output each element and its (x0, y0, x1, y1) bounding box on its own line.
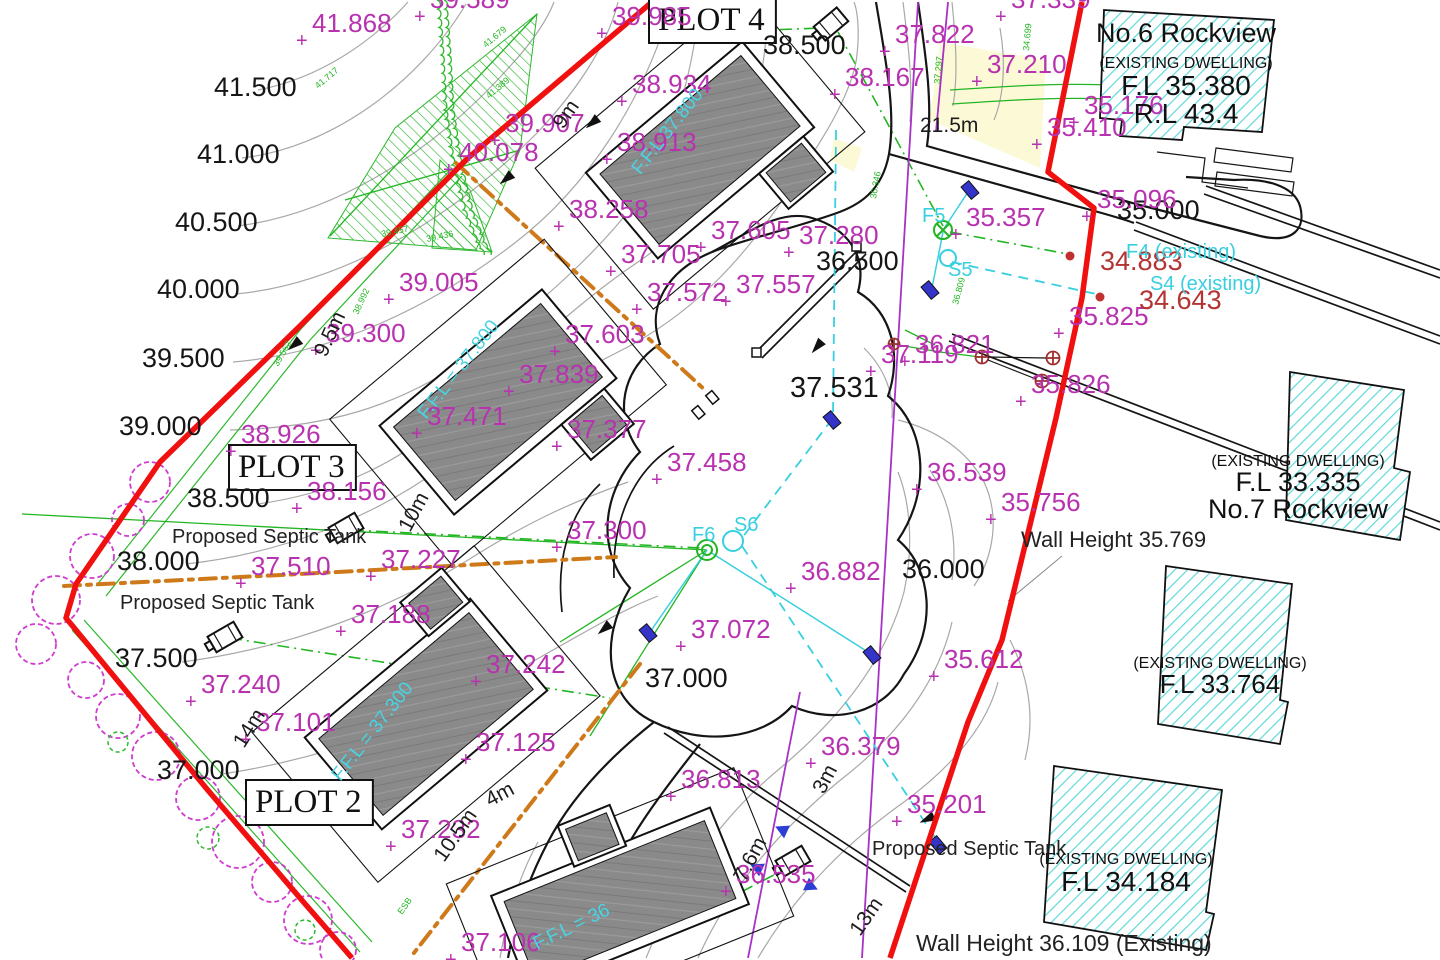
plus-mark: + (1015, 391, 1027, 413)
plus-mark: + (225, 441, 237, 463)
spot-level-label: 35.826 (1031, 369, 1111, 399)
spot-level-label: 37.188 (351, 599, 431, 629)
dimension-label: 4m (482, 777, 519, 811)
spot-level-label: 37.557 (736, 269, 816, 299)
spot-level-label: 36.813 (681, 764, 761, 794)
spot-level-label: 37.119 (881, 339, 959, 369)
contour-label: 41.500 (214, 72, 297, 102)
plus-mark: + (783, 242, 795, 264)
plus-mark: + (335, 621, 347, 643)
spot-level-label: 35.201 (907, 789, 987, 819)
plus-mark: + (891, 811, 903, 833)
spot-level-label: 36.379 (821, 731, 901, 761)
spot-level-label: 35.756 (1001, 487, 1081, 517)
survey-point-label: 38.992 (351, 287, 372, 316)
plus-mark: + (443, 159, 455, 181)
existing-dwelling-label: F.L 33.335 (1235, 467, 1360, 497)
dimension-label: 10m (394, 488, 433, 535)
plus-mark: + (1053, 323, 1065, 345)
plus-mark: + (411, 423, 423, 445)
existing-dwelling-label: F.L 34.184 (1061, 866, 1191, 897)
dimension-label: 21.5m (920, 114, 978, 137)
plus-mark: + (553, 216, 565, 238)
spot-level-label: 35.357 (966, 202, 1046, 232)
spot-level-label: 38.926 (241, 419, 321, 449)
annotation-label: Proposed Septic Tank (120, 592, 315, 614)
contour-label: 40.000 (157, 274, 240, 304)
tree-symbol (16, 624, 56, 664)
spot-level-label: 38.156 (307, 476, 387, 506)
plot-title: PLOT 2 (255, 784, 362, 820)
annotation-label: Proposed Septic Tank (872, 838, 1067, 860)
plus-mark: + (911, 479, 923, 501)
dimension-label: 13m (845, 893, 887, 940)
plus-mark: + (551, 436, 563, 458)
plus-mark: + (385, 836, 397, 858)
spot-level-label: 37.822 (895, 19, 975, 49)
plus-mark: + (383, 289, 395, 311)
survey-point-label: 41.717 (313, 65, 341, 90)
spot-level-label: 37.510 (251, 551, 331, 581)
survey-point-label: 36.346 (868, 170, 883, 199)
site-plan-drawing: PLOT 4PLOT 3PLOT 241.50041.00040.50040.0… (0, 0, 1440, 960)
spot-level-label: 37.603 (565, 319, 645, 349)
spot-level-label: 37.377 (567, 414, 647, 444)
existing-dwelling-label: F.L 33.764 (1160, 669, 1280, 699)
plus-mark: + (950, 224, 962, 246)
plus-mark: + (720, 881, 732, 903)
spot-level-label: 37.106 (461, 927, 541, 957)
plus-mark: + (445, 949, 457, 960)
plus-mark: + (296, 30, 308, 52)
existing-dwelling-label: F.L 35.380 (1121, 70, 1251, 101)
plus-mark: + (865, 361, 877, 383)
drainage-node-label: S4 (existing) (1150, 273, 1261, 295)
contour-label: 37.000 (645, 663, 728, 693)
spot-level-label: 35.410 (1047, 112, 1127, 142)
existing-dwelling-label: R.L 43.4 (1134, 98, 1239, 129)
contour-label: 41.000 (197, 139, 280, 169)
contour-label: 38.000 (117, 546, 200, 576)
plus-mark: + (675, 636, 687, 658)
plus-mark: + (665, 786, 677, 808)
plus-mark: + (1081, 206, 1093, 228)
plus-mark: + (605, 261, 617, 283)
spot-level-label: 37.240 (201, 669, 281, 699)
spot-level-label: 36.882 (801, 556, 881, 586)
contour-label: 36.500 (816, 246, 899, 276)
plus-mark: + (785, 578, 797, 600)
plus-mark: + (651, 469, 663, 491)
plus-mark: + (995, 6, 1007, 28)
plus-mark: + (1031, 134, 1043, 156)
spot-level-label: 41.868 (312, 8, 392, 38)
existing-node-F4-icon (1066, 252, 1075, 261)
spot-level-label: 37.227 (381, 544, 461, 574)
spot-level-label: 37.339 (1011, 0, 1091, 14)
drainage-node-label: F6 (692, 524, 715, 546)
shrub-symbol (108, 732, 128, 752)
spot-level-label: 38.258 (569, 194, 649, 224)
plus-mark: + (365, 566, 377, 588)
plus-mark: + (470, 671, 482, 693)
plus-mark: + (551, 537, 563, 559)
shrub-symbol (197, 827, 219, 849)
spot-level-label: 39.589 (430, 0, 510, 14)
existing-dwelling-label: No.6 Rockview (1096, 18, 1277, 48)
plus-mark: + (616, 91, 628, 113)
plus-mark: + (720, 291, 732, 313)
plus-mark: + (928, 666, 940, 688)
plus-mark: + (631, 299, 643, 321)
contour-label: 37.000 (157, 755, 240, 785)
spot-level-label: 37.101 (256, 707, 336, 737)
spot-level-label: 37.458 (667, 447, 747, 477)
existing-dwelling-label: No.7 Rockview (1208, 494, 1389, 524)
plus-mark: + (414, 6, 426, 28)
spot-level-label: 37.605 (711, 215, 791, 245)
spot-level-label: 37.300 (567, 515, 647, 545)
spot-level-label: 37.280 (799, 220, 879, 250)
contour-label: 36.000 (902, 554, 985, 584)
annotation-label: Wall Height 36.109 (Existing) (916, 930, 1212, 956)
plus-mark: + (879, 41, 891, 63)
contour-label: 37.500 (115, 643, 198, 673)
annotation-label: Wall Height 35.769 (1021, 527, 1206, 552)
plus-mark: + (596, 23, 608, 45)
annotation-label: Proposed Septic Tank (172, 526, 367, 548)
spot-level-label: 35.825 (1069, 301, 1149, 331)
spot-level-label: 37.705 (621, 239, 701, 269)
plus-mark: + (985, 509, 997, 531)
spot-level-label: 35.612 (944, 644, 1024, 674)
plus-mark: + (460, 749, 472, 771)
plus-mark: + (489, 130, 501, 152)
contour-label: 39.000 (119, 411, 202, 441)
drainage-node-label: F4 (existing) (1126, 241, 1236, 263)
spot-level-label: 39.985 (612, 1, 692, 31)
spot-level-label: 37.125 (476, 727, 556, 757)
plus-mark: + (291, 498, 303, 520)
contour-label: 39.500 (142, 343, 225, 373)
survey-point-label: ESB (395, 896, 414, 916)
spot-level-label: 37.242 (486, 649, 566, 679)
plus-mark: + (601, 149, 613, 171)
spot-level-label: 37.072 (691, 614, 771, 644)
spot-level-label: 35.096 (1097, 184, 1177, 214)
spot-level-label: 37.572 (647, 277, 727, 307)
contour-label: 38.500 (187, 483, 270, 513)
plus-mark: + (185, 691, 197, 713)
spot-level-label: 36.539 (927, 457, 1007, 487)
spot-level-label: 39.005 (399, 267, 479, 297)
plus-mark: + (971, 71, 983, 93)
drainage-node-label: S6 (734, 514, 758, 536)
drainage-node-label: F5 (922, 205, 945, 227)
survey-point-label: 34.699 (1021, 23, 1033, 51)
site-plan-svg: PLOT 4PLOT 3PLOT 241.50041.00040.50040.0… (0, 0, 1440, 960)
spot-level-label: 37.839 (519, 359, 599, 389)
shrub-symbol (295, 920, 315, 940)
spot-level-label: 38.167 (845, 62, 925, 92)
plus-mark: + (503, 381, 515, 403)
contour-label: 40.500 (175, 207, 258, 237)
spot-level-label: 37.210 (987, 49, 1067, 79)
plus-mark: + (829, 84, 841, 106)
contour-label: 38.500 (763, 30, 846, 60)
tree-symbol (68, 662, 104, 698)
